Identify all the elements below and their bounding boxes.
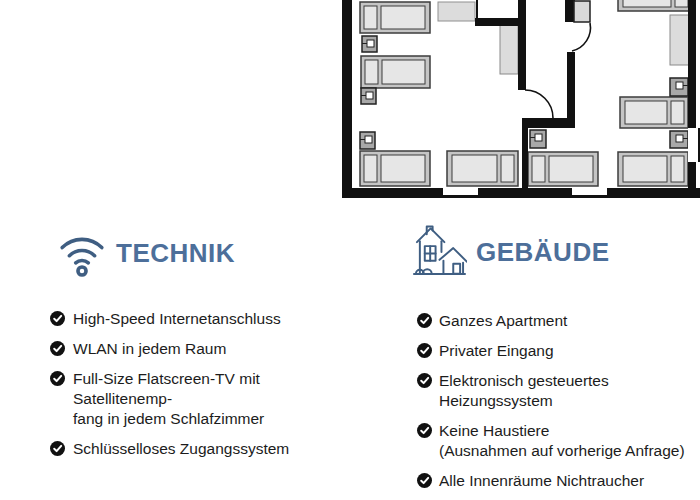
page: TECHNIK High-Speed Internetanschluss WLA… <box>0 0 700 500</box>
gebaeude-title: GEBÄUDE <box>476 237 610 268</box>
technik-list: High-Speed Internetanschluss WLAN in jed… <box>50 309 360 469</box>
list-item-text: WLAN in jedem Raum <box>73 339 226 359</box>
list-item-text: Full-Size Flatscreen-TV mit Satellitenem… <box>73 369 360 409</box>
bed <box>618 0 692 11</box>
check-icon <box>417 373 432 388</box>
list-item: Elektronisch gesteuertes Heizungssystem <box>417 371 697 411</box>
list-item-text: High-Speed Internetanschluss <box>73 309 281 329</box>
check-icon <box>50 371 65 386</box>
list-item-text: fang in jedem Schlafzimmer <box>73 409 360 429</box>
bed <box>360 151 430 186</box>
bed <box>361 56 430 88</box>
check-icon <box>50 311 65 326</box>
door <box>572 1 590 51</box>
list-item: WLAN in jedem Raum <box>50 339 360 359</box>
house-icon <box>412 222 467 282</box>
bed <box>360 2 430 33</box>
closet <box>438 2 475 21</box>
check-icon <box>417 313 432 328</box>
check-icon <box>50 341 65 356</box>
bed <box>620 97 688 128</box>
door <box>525 90 553 118</box>
check-icon <box>417 423 432 438</box>
bed <box>528 152 598 186</box>
list-item-text: Elektronisch gesteuertes Heizungssystem <box>439 371 697 411</box>
list-item: Full-Size Flatscreen-TV mit Satellitenem… <box>50 369 360 429</box>
nightstand <box>360 132 375 149</box>
list-item-text: Schlüsselloses Zugangssystem <box>73 439 289 459</box>
list-item: Privater Eingang <box>417 341 697 361</box>
bed <box>618 152 688 186</box>
list-item: Ganzes Apartment <box>417 311 697 331</box>
nightstand <box>530 130 546 148</box>
list-item-text: Keine Haustiere <box>439 421 685 441</box>
list-item-text: Privater Eingang <box>439 341 554 361</box>
check-icon <box>417 473 432 488</box>
list-item: Schlüsselloses Zugangssystem <box>50 439 360 459</box>
check-icon <box>50 441 65 456</box>
list-item: High-Speed Internetanschluss <box>50 309 360 329</box>
list-item: Keine Haustiere (Ausnahmen auf vorherige… <box>417 421 697 461</box>
check-icon <box>417 343 432 358</box>
nightstand <box>670 131 688 148</box>
bed <box>447 151 518 186</box>
list-item: Alle Innenräume Nichtraucher <box>417 471 697 491</box>
list-item-text: (Ausnahmen auf vorherige Anfrage) <box>439 441 685 461</box>
gebaeude-list: Ganzes Apartment Privater Eingang Elektr… <box>417 311 697 500</box>
nightstand <box>362 36 377 52</box>
door-panel <box>574 1 590 22</box>
nightstand <box>361 88 376 104</box>
technik-title: TECHNIK <box>116 238 235 269</box>
wifi-icon <box>55 227 109 279</box>
wardrobe <box>500 24 518 74</box>
nightstand <box>670 78 688 96</box>
floorplan <box>342 0 700 200</box>
technik-header: TECHNIK <box>55 227 235 279</box>
list-item-text: Alle Innenräume Nichtraucher <box>439 471 644 491</box>
list-item-text: Ganzes Apartment <box>439 311 567 331</box>
gebaeude-header: GEBÄUDE <box>412 222 610 282</box>
